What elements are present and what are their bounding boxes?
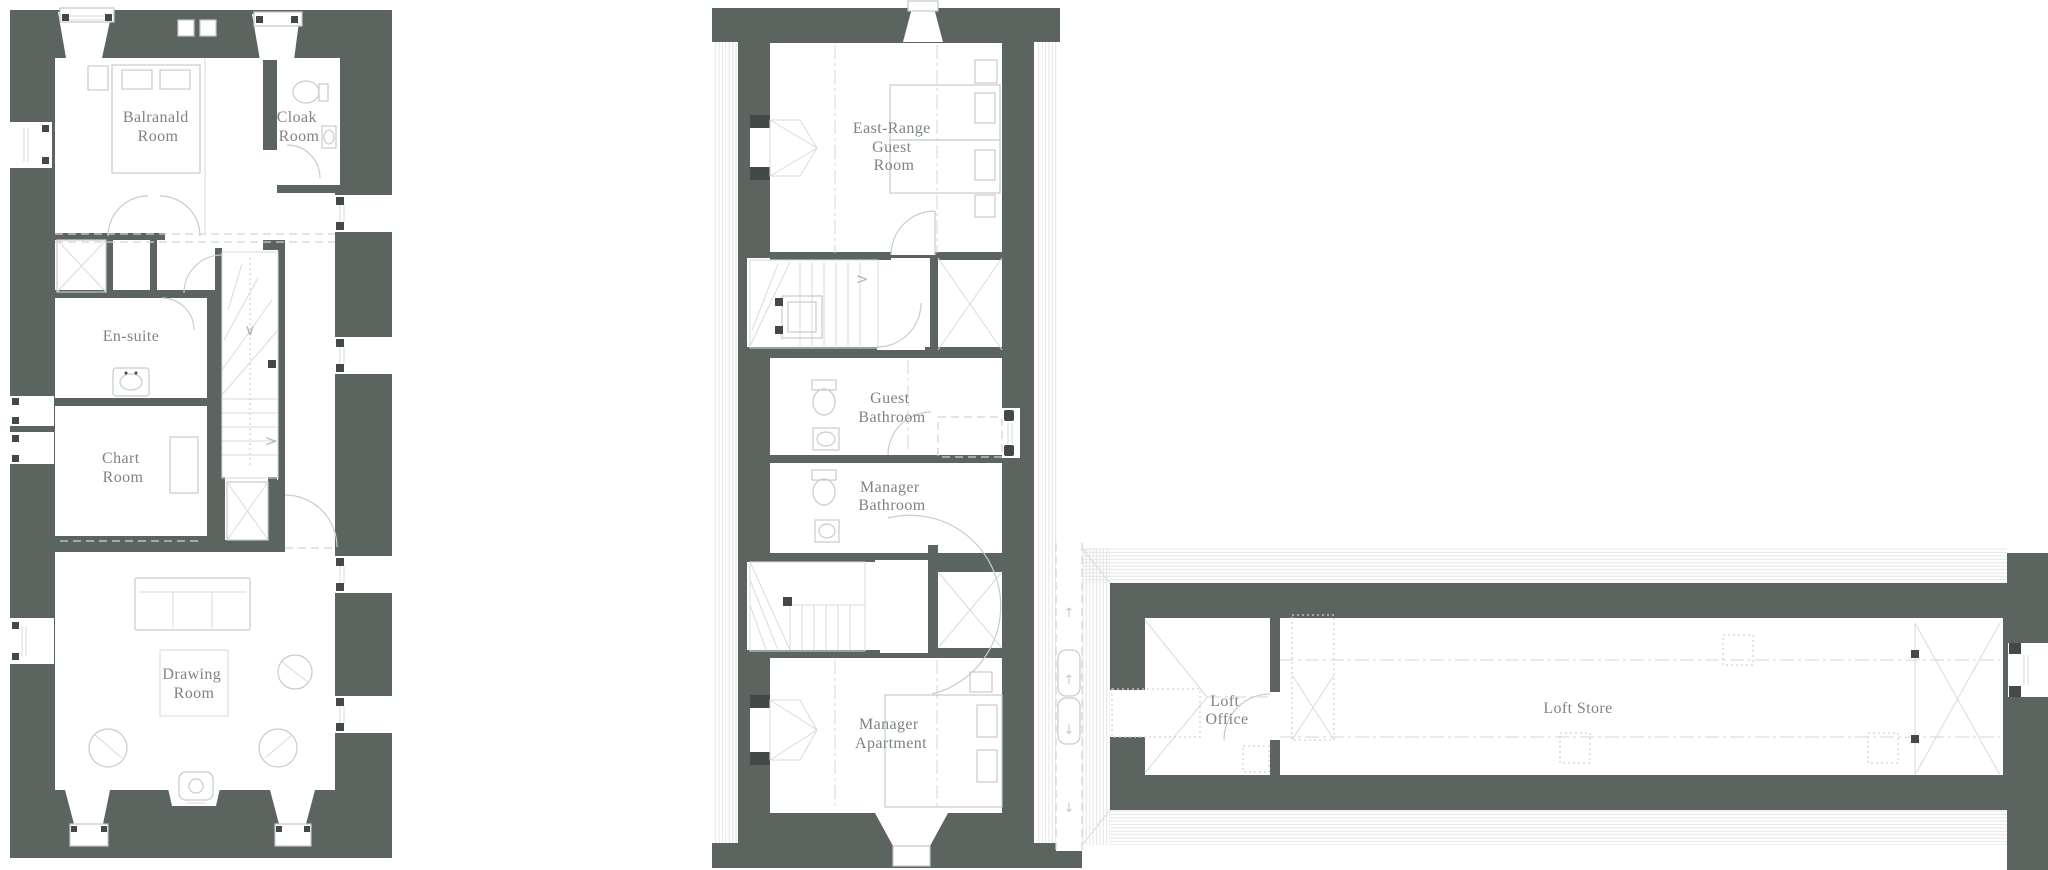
en-suite-area bbox=[55, 298, 207, 398]
window-sill bbox=[908, 1, 938, 11]
floor-plan-sheet: ∨ > bbox=[0, 0, 2048, 870]
main-house-plan: ∨ > bbox=[10, 8, 392, 858]
east-corridor-area bbox=[285, 150, 335, 552]
loft-store-label: Loft Store bbox=[1543, 700, 1612, 717]
manager-bathroom-label: Manager Bathroom bbox=[858, 479, 925, 514]
walkway-down-icon: ↓ bbox=[1064, 723, 1075, 738]
door-opening bbox=[1270, 692, 1280, 740]
gable-door-opening bbox=[2008, 643, 2048, 697]
stair-down-icon: ∨ bbox=[245, 321, 256, 339]
loft-office-label: Loft Office bbox=[1206, 693, 1249, 728]
stair-right-icon: > bbox=[856, 270, 869, 288]
eaves-hatch-left bbox=[1082, 548, 1110, 845]
eaves-hatch-left bbox=[714, 40, 738, 843]
eaves-hatch-right bbox=[1036, 40, 1058, 843]
east-range-plan: > bbox=[712, 1, 1060, 868]
walkway-down-icon: ↓ bbox=[1064, 801, 1075, 816]
floor-plan-canvas: ∨ > bbox=[0, 0, 2048, 870]
stair-right-icon: > bbox=[265, 432, 278, 450]
en-suite-label: En-suite bbox=[103, 328, 160, 345]
walkway-up-icon: ↑ bbox=[1064, 606, 1075, 621]
door-step bbox=[893, 846, 930, 866]
loft-plan: ↑ ↑ ↓ ↓ bbox=[1034, 543, 2048, 870]
chimney-flue bbox=[178, 20, 194, 36]
dormer-opening bbox=[1110, 690, 1145, 737]
eaves-hatch-top bbox=[1082, 548, 2007, 583]
loft-store-area bbox=[1280, 618, 2003, 775]
chimney-flue bbox=[200, 20, 216, 36]
hall-area bbox=[263, 150, 285, 240]
eaves-hatch-bottom bbox=[1110, 810, 2007, 845]
window-opening bbox=[1002, 408, 1020, 458]
walkway-up-icon: ↑ bbox=[1064, 673, 1075, 688]
